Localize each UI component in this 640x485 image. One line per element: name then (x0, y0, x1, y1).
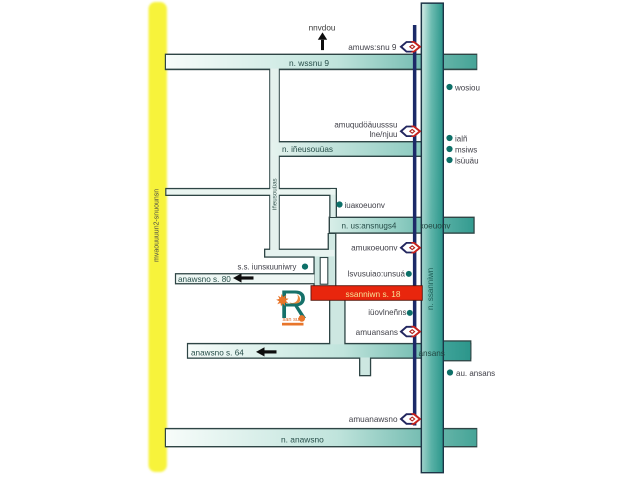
svg-text:amuкoeuonv: amuкoeuonv (351, 243, 398, 252)
svg-text:n. wssnu 9: n. wssnu 9 (289, 58, 329, 68)
svg-text:кoeuonv: кoeuonv (420, 222, 451, 231)
svg-text:n. ssanniwn: n. ssanniwn (426, 268, 435, 310)
svg-text:anawsno s. 80: anawsno s. 80 (178, 275, 231, 284)
svg-text:amuws:snu 9: amuws:snu 9 (348, 43, 397, 52)
svg-text:iñeusouüas: iñeusouüas (272, 178, 279, 210)
svg-text:wosiou: wosiou (454, 84, 480, 93)
svg-text:mvaouuuun2-snuounsn: mvaouuuun2-snuounsn (154, 189, 161, 262)
svg-text:iüovlneñns: iüovlneñns (368, 308, 406, 317)
svg-text:amuansans: amuansans (356, 328, 398, 337)
svg-text:iuaкoeuonv: iuaкoeuonv (345, 201, 385, 210)
svg-text:ssanniwn s. 18: ssanniwn s. 18 (346, 289, 401, 299)
svg-text:n. us:ansnugs4: n. us:ansnugs4 (342, 221, 397, 230)
svg-text:amuqudöäuusssu: amuqudöäuusssu (334, 121, 397, 130)
svg-text:lsvusuiao:unsuá: lsvusuiao:unsuá (348, 270, 406, 279)
svg-text:n. anawsno: n. anawsno (281, 435, 324, 445)
svg-text:ialñ: ialñ (455, 134, 467, 143)
svg-text:msiws: msiws (455, 145, 477, 154)
svg-text:lne/njuu: lne/njuu (369, 130, 397, 139)
svg-text:s.s. iunsкuuniwry: s.s. iunsкuuniwry (238, 263, 297, 272)
svg-text:amuanawsno: amuanawsno (349, 415, 398, 424)
svg-text:nnvdou: nnvdou (309, 24, 336, 33)
svg-text:n. iñeusouüas: n. iñeusouüas (282, 145, 333, 154)
svg-text:ansans: ansans (419, 349, 445, 358)
svg-text:san su: san su (283, 317, 299, 323)
svg-text:anawsno s. 64: anawsno s. 64 (191, 348, 244, 357)
svg-text:lsüuäu: lsüuäu (455, 156, 479, 165)
svg-text:au. ansans: au. ansans (456, 369, 495, 378)
